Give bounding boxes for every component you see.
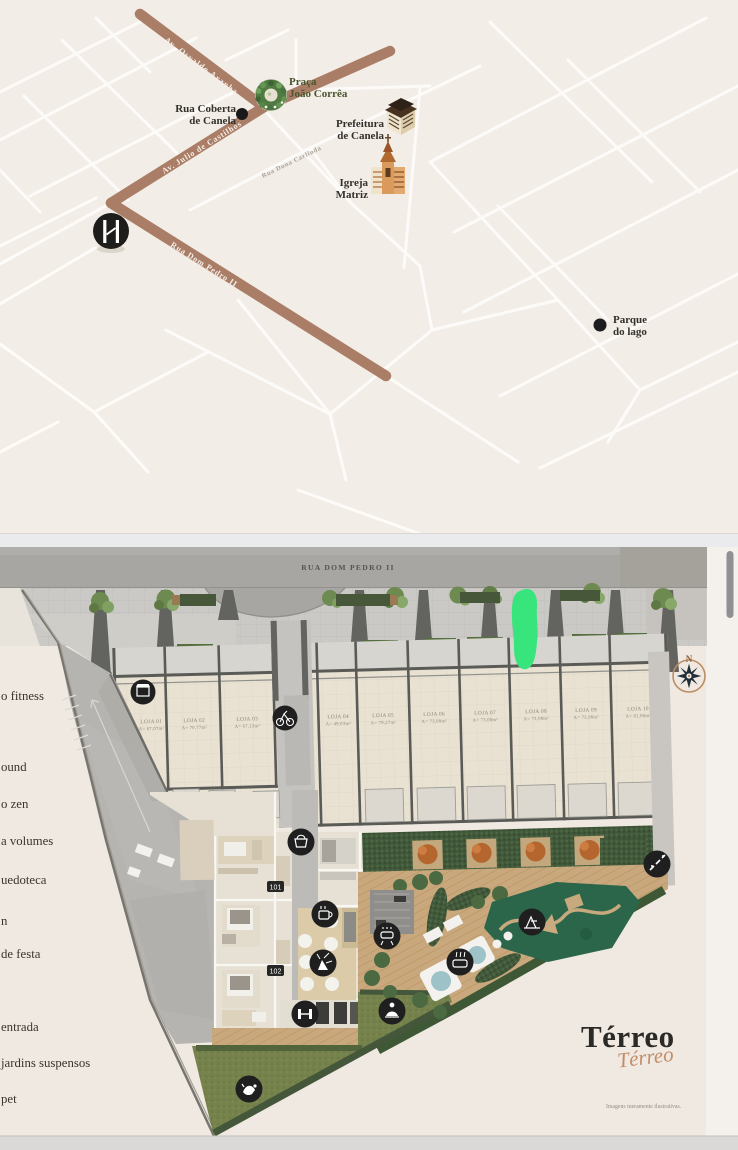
svg-text:Igreja: Igreja <box>339 177 368 189</box>
svg-text:Matriz: Matriz <box>336 189 368 201</box>
svg-text:João Corrêa: João Corrêa <box>289 88 348 100</box>
svg-text:102: 102 <box>270 969 282 976</box>
svg-text:LOJA 01: LOJA 01 <box>140 719 162 726</box>
svg-text:RUA DOM PEDRO II: RUA DOM PEDRO II <box>301 563 395 572</box>
svg-text:N: N <box>686 654 693 664</box>
svg-text:Rua Coberta: Rua Coberta <box>175 103 236 115</box>
svg-text:jardins suspensos: jardins suspensos <box>0 1056 90 1070</box>
svg-text:LOJA 05: LOJA 05 <box>372 713 394 720</box>
svg-text:de Canela: de Canela <box>337 130 384 142</box>
svg-text:de festa: de festa <box>1 947 41 961</box>
svg-text:LOJA 03: LOJA 03 <box>236 716 258 723</box>
svg-text:LOJA 10: LOJA 10 <box>627 706 649 713</box>
svg-text:o fitness: o fitness <box>1 689 44 703</box>
svg-text:n: n <box>1 914 8 928</box>
svg-text:Imagens meramente ilustrativas: Imagens meramente ilustrativas. <box>606 1104 682 1110</box>
svg-text:101: 101 <box>270 885 282 892</box>
svg-text:o zen: o zen <box>1 797 29 811</box>
svg-text:do lago: do lago <box>613 326 647 338</box>
svg-text:ound: ound <box>1 760 27 774</box>
svg-text:de Canela: de Canela <box>189 115 236 127</box>
svg-text:LOJA 09: LOJA 09 <box>575 707 597 714</box>
svg-text:LOJA 08: LOJA 08 <box>525 709 547 716</box>
svg-text:LOJA 07: LOJA 07 <box>474 710 496 717</box>
svg-text:uedoteca: uedoteca <box>1 873 47 887</box>
svg-text:LOJA 04: LOJA 04 <box>327 714 349 721</box>
svg-text:Praça: Praça <box>289 76 317 88</box>
svg-text:Parque: Parque <box>613 314 647 326</box>
svg-text:LOJA 06: LOJA 06 <box>423 711 445 718</box>
svg-text:pet: pet <box>1 1092 17 1106</box>
svg-text:LOJA 02: LOJA 02 <box>183 718 205 725</box>
svg-text:Prefeitura: Prefeitura <box>336 118 385 130</box>
svg-text:entrada: entrada <box>1 1020 39 1034</box>
svg-text:a volumes: a volumes <box>1 834 53 848</box>
